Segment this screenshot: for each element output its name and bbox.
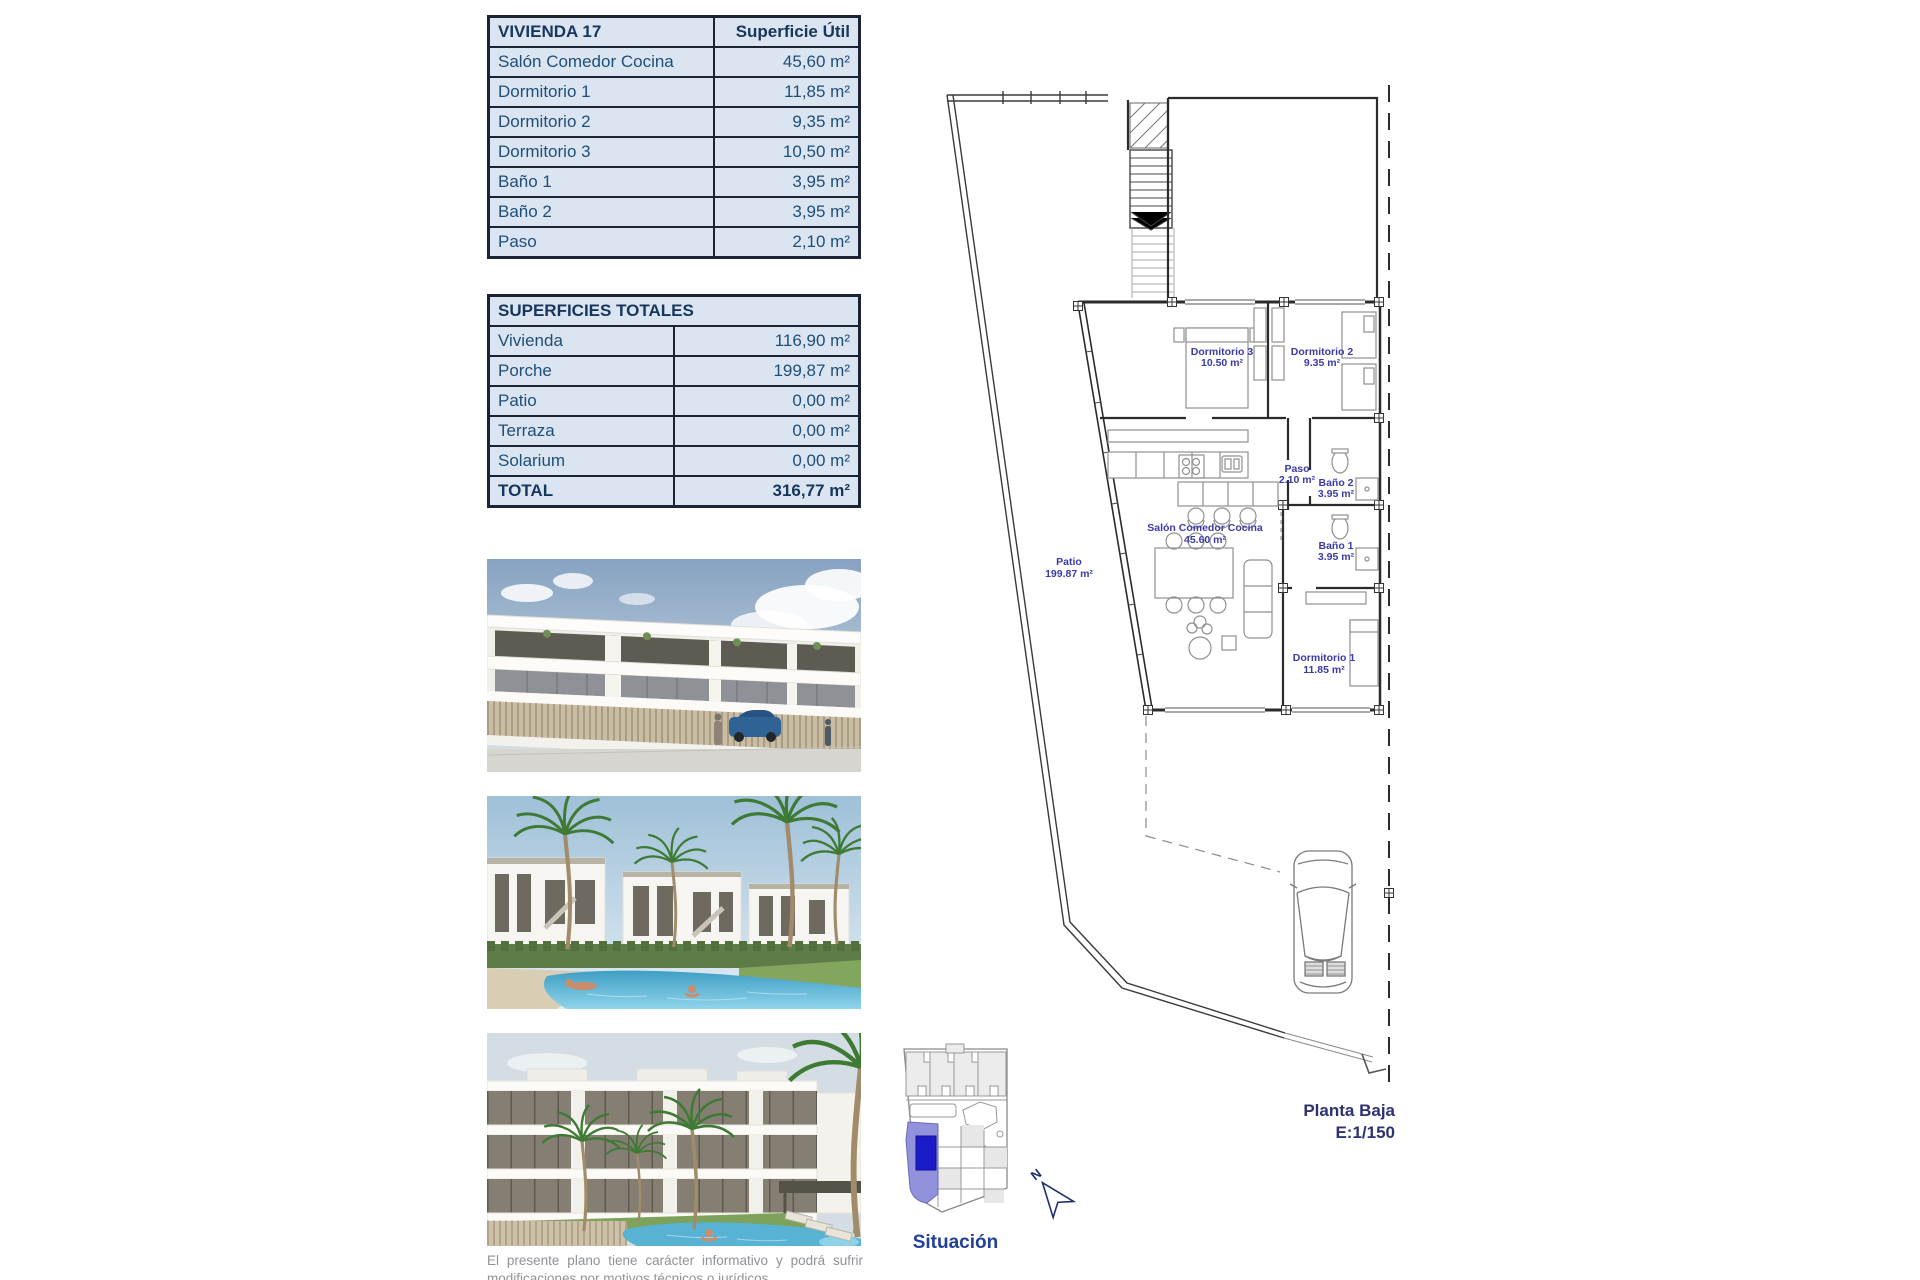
porch-dashed-line <box>1146 716 1280 872</box>
row-label: Porche <box>489 356 675 386</box>
row-value: 3,95 m² <box>714 167 859 197</box>
disclaimer-text: El presente plano tiene carácter informa… <box>487 1252 863 1280</box>
table-header-row: SUPERFICIES TOTALES <box>489 296 860 327</box>
car-icon <box>1290 851 1356 993</box>
table-title: VIVIENDA 17 <box>489 17 715 48</box>
row-label: Paso <box>489 227 715 258</box>
table-row: Salón Comedor Cocina 45,60 m² <box>489 47 860 77</box>
row-value: 199,87 m² <box>674 356 860 386</box>
row-label: Patio <box>489 386 675 416</box>
row-value: 0,00 m² <box>674 386 860 416</box>
townhouse-buildings <box>487 615 861 762</box>
row-label: Dormitorio 2 <box>489 107 715 137</box>
room-area: 11.85 m² <box>1303 664 1345 676</box>
table-header-row: VIVIENDA 17 Superficie Útil <box>489 17 860 48</box>
plan-sheet: VIVIENDA 17 Superficie Útil Salón Comedo… <box>0 0 1920 1280</box>
render-photo-pool-garden <box>487 796 861 1009</box>
room-area: 9.35 m² <box>1304 357 1341 369</box>
table-row: Baño 2 3,95 m² <box>489 197 860 227</box>
room-label: Salón Comedor Cocina <box>1147 522 1263 534</box>
totales-table: SUPERFICIES TOTALES Vivienda 116,90 m² P… <box>487 294 861 508</box>
table-row: Dormitorio 3 10,50 m² <box>489 137 860 167</box>
situation-caption: Situación <box>893 1231 1018 1256</box>
plan-caption: Planta Baja E:1/150 <box>1255 1100 1395 1144</box>
room-area: 45.60 m² <box>1184 534 1227 546</box>
row-value: 3,95 m² <box>714 197 859 227</box>
row-value: 0,00 m² <box>674 416 860 446</box>
vivienda-table: VIVIENDA 17 Superficie Útil Salón Comedo… <box>487 15 861 259</box>
table-header-value: Superficie Útil <box>714 17 859 48</box>
row-value: 116,90 m² <box>674 326 860 356</box>
row-label: Solarium <box>489 446 675 476</box>
row-value: 11,85 m² <box>714 77 859 107</box>
table-title: SUPERFICIES TOTALES <box>489 296 860 327</box>
table-row: Porche 199,87 m² <box>489 356 860 386</box>
row-label: Salón Comedor Cocina <box>489 47 715 77</box>
render-photo-townhouses <box>487 559 861 772</box>
row-label: Baño 1 <box>489 167 715 197</box>
floor-plan: Dormitorio 3 10.50 m² Dormitorio 2 9.35 … <box>880 60 1420 1270</box>
row-value: 45,60 m² <box>714 47 859 77</box>
row-label: Dormitorio 1 <box>489 77 715 107</box>
highlighted-building <box>916 1136 936 1170</box>
pavement <box>487 749 861 772</box>
room-area: 2.10 m² <box>1279 474 1316 486</box>
table-row: Vivienda 116,90 m² <box>489 326 860 356</box>
room-label: Patio <box>1056 556 1082 568</box>
row-label: Terraza <box>489 416 675 446</box>
row-label: Baño 2 <box>489 197 715 227</box>
row-label: Dormitorio 3 <box>489 137 715 167</box>
kitchen-counter <box>1108 430 1248 478</box>
table-total-row: TOTAL 316,77 m² <box>489 476 860 507</box>
north-arrow-icon: N <box>1021 1160 1074 1217</box>
north-label: N <box>1028 1166 1045 1184</box>
highlighted-plot <box>906 1122 938 1203</box>
table-row: Baño 1 3,95 m² <box>489 167 860 197</box>
room-area: 199.87 m² <box>1045 568 1093 580</box>
slat-fence <box>487 1221 627 1246</box>
table-row: Paso 2,10 m² <box>489 227 860 258</box>
apartment-building <box>487 1069 861 1221</box>
porch-room <box>1168 98 1377 302</box>
table-row: Dormitorio 1 11,85 m² <box>489 77 860 107</box>
room-area: 10.50 m² <box>1201 357 1244 369</box>
total-label: TOTAL <box>489 476 675 507</box>
room-label: Dormitorio 1 <box>1293 652 1356 664</box>
situation-buildings <box>906 1044 1006 1096</box>
situation-map <box>904 1044 1007 1212</box>
room-area: 3.95 m² <box>1318 488 1355 500</box>
row-label: Vivienda <box>489 326 675 356</box>
row-value: 0,00 m² <box>674 446 860 476</box>
row-value: 2,10 m² <box>714 227 859 258</box>
plan-caption-scale: E:1/150 <box>1255 1122 1395 1144</box>
table-row: Solarium 0,00 m² <box>489 446 860 476</box>
plan-caption-title: Planta Baja <box>1255 1100 1395 1122</box>
table-row: Dormitorio 2 9,35 m² <box>489 107 860 137</box>
table-row: Patio 0,00 m² <box>489 386 860 416</box>
row-value: 10,50 m² <box>714 137 859 167</box>
render-photo-apartments-pool <box>487 1033 861 1246</box>
room-area: 3.95 m² <box>1318 551 1355 563</box>
total-value: 316,77 m² <box>674 476 860 507</box>
row-value: 9,35 m² <box>714 107 859 137</box>
table-row: Terraza 0,00 m² <box>489 416 860 446</box>
